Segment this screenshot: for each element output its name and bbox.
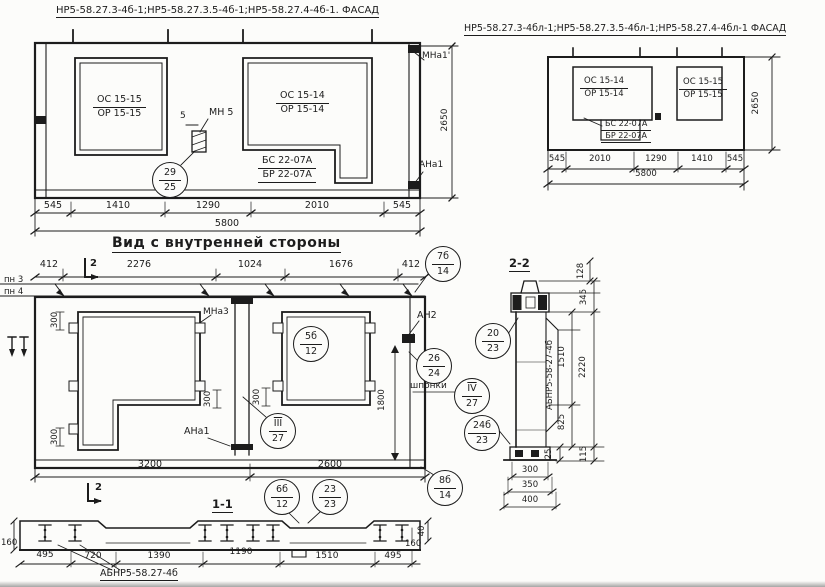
facade-left-window2-label: ОС 15-14 ОР 15-14 (276, 90, 329, 116)
section-2-marker: 2 (95, 482, 102, 493)
window-sash-mark: ОС 15-15 (93, 94, 146, 108)
dim: 412 (27, 260, 71, 270)
callout-6b-12: 6б 12 (264, 479, 300, 515)
dim-total-5800: 5800 (628, 170, 664, 179)
anchor-mna1-label: МНа1' (422, 52, 450, 62)
dim: 2276 (117, 260, 161, 270)
anchor-ana1-label: АНа1 (419, 161, 443, 171)
dim-300: 300 (51, 305, 63, 335)
pn4-label: пн 4 (4, 288, 23, 297)
dim: 1410 (684, 155, 720, 164)
dim-720: 720 (75, 552, 111, 562)
dim-2220: 2220 (579, 352, 591, 382)
pn3-label: пн 3 (4, 276, 23, 285)
beam-mark: БС 22-07А (258, 155, 316, 169)
dim: 545 (33, 201, 73, 211)
window-frame-mark: ОР 15-14 (276, 104, 329, 116)
dim: 545 (717, 155, 753, 164)
drawing-sheet: НР5-58.27.3-4б-1;НР5-58.27.3.5-4б-1;НР5-… (0, 0, 825, 587)
dim: 1290 (188, 201, 228, 211)
callout-5b-12: 5б 12 (293, 326, 329, 362)
dim-495: 495 (27, 551, 63, 561)
dim-115: 115 (580, 439, 592, 469)
dim: 2010 (582, 155, 618, 164)
dim-height-2650: 2650 (441, 105, 453, 135)
dim-160-right: 160 (405, 540, 421, 549)
anchor-an2-label: АН2 (417, 311, 437, 321)
dim: 1290 (638, 155, 674, 164)
dim: 2010 (297, 201, 337, 211)
dim: 1410 (98, 201, 138, 211)
dim-total-5800: 5800 (207, 219, 247, 229)
dim-300: 300 (204, 384, 216, 414)
panel-mark-label: АБНР5-58.27-4б (100, 569, 178, 581)
dim-300: 300 (512, 466, 548, 475)
dim-825: 825 (558, 407, 570, 437)
callout-8b-14: 8б 14 (427, 470, 463, 506)
dim-300: 300 (51, 422, 63, 452)
section-2-2-title: 2-2 (509, 257, 530, 272)
anchor-ana1-label: АНа1 (184, 427, 210, 437)
dim: 1676 (319, 260, 363, 270)
callout-23-23: 23 23 (312, 479, 348, 515)
shponki-label: шпонки (410, 382, 447, 392)
section-2-marker: 2 (90, 258, 97, 269)
dim-160-left: 160 (1, 539, 17, 548)
facade-right-window1-label: ОС 15-14 ОР 15-14 (580, 76, 628, 99)
dim-1190: 1190 (223, 548, 259, 558)
dim-1510: 1510 (309, 552, 345, 562)
dim-25: 25 (545, 439, 557, 469)
callout-26-24: 26 24 (416, 348, 452, 384)
dim: 545 (539, 155, 575, 164)
dim: 545 (382, 201, 422, 211)
facade-left-title: НР5-58.27.3-4б-1;НР5-58.27.3.5-4б-1;НР5-… (56, 5, 379, 18)
window-frame-mark: ОР 15-15 (93, 108, 146, 120)
dim-1800: 1800 (378, 385, 390, 415)
dim-3200: 3200 (120, 460, 180, 470)
callout-7b-14: 7б 14 (425, 246, 461, 282)
facade-right-window2-label: ОС 15-15 ОР 15-15 (679, 77, 727, 100)
dim-height-2650: 2650 (752, 88, 764, 118)
facade-left-beam-label: БС 22-07А БР 22-07А (258, 155, 316, 183)
dim-1390: 1390 (141, 552, 177, 562)
facade-right-linework (544, 48, 780, 190)
anchor-mna3-label: МНа3 (203, 308, 229, 318)
dim-5: 5 (180, 112, 186, 122)
facade-right-title: НР5-58.27.3-4бл-1;НР5-58.27.3.5-4бл-1;НР… (464, 24, 786, 36)
scan-edge-artifact (0, 581, 825, 587)
dim: 1024 (228, 260, 272, 270)
inner-view-title: Вид с внутренней стороны (112, 236, 341, 253)
dim-345: 345 (580, 282, 592, 312)
beam-mark: БР 22-07А (258, 169, 316, 183)
dim-350: 350 (512, 481, 548, 490)
callout-IV-27: IV 27 (454, 378, 490, 414)
panel-mark-vertical: АБНР5-58-27-4б (546, 330, 558, 420)
callout-24b-23: 24б 23 (464, 415, 500, 451)
dim-1510: 1510 (558, 342, 570, 372)
callout-20-23: 20 23 (475, 323, 511, 359)
window-sash-mark: ОС 15-14 (276, 90, 329, 104)
facade-left-window1-label: ОС 15-15 ОР 15-15 (93, 94, 146, 120)
callout-29-25: 29 25 (152, 162, 188, 198)
mn5-label: МН 5 (209, 108, 233, 118)
dim-300: 300 (253, 382, 265, 412)
dim-2600: 2600 (300, 460, 360, 470)
section-1-1-title: 1-1 (212, 498, 233, 513)
dim-400: 400 (512, 496, 548, 505)
dim-495: 495 (375, 552, 411, 562)
callout-III-27: III 27 (260, 413, 296, 449)
facade-right-beam-label: БС 22-07А БР 22-07А (601, 119, 651, 143)
section-1-1-linework (11, 518, 431, 570)
